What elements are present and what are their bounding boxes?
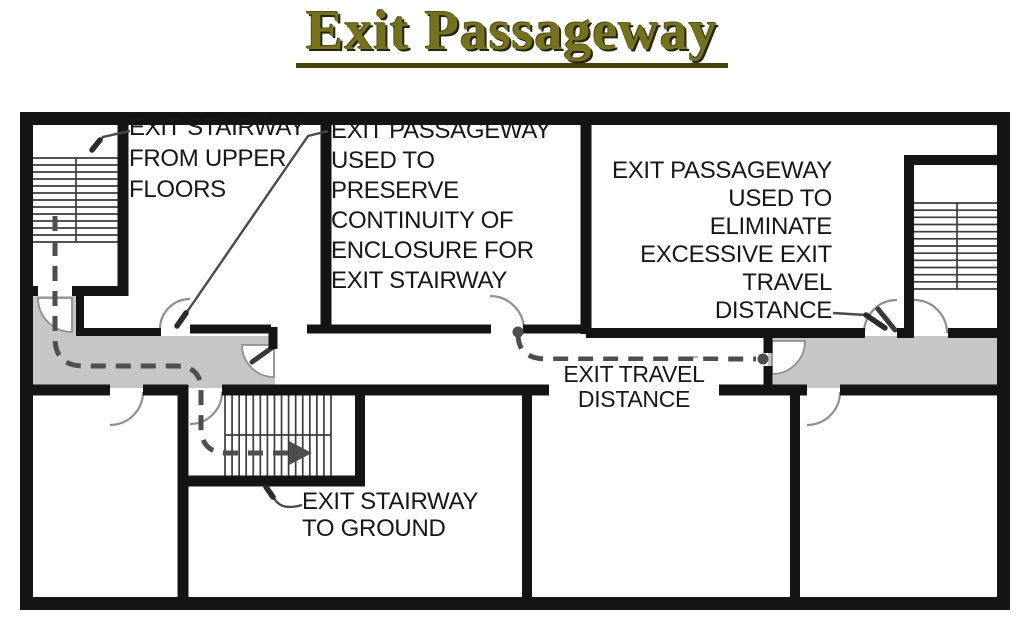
floor-plan bbox=[0, 0, 1024, 625]
travel-distance-start-dot-icon bbox=[513, 327, 524, 338]
travel-distance-end-dot-icon bbox=[758, 354, 769, 365]
exit-passageway-diagram: Exit Passageway bbox=[0, 0, 1024, 625]
exit-passageway-fills bbox=[28, 296, 1004, 388]
eliminate-label-leader bbox=[833, 313, 866, 315]
label-exit-travel-distance: EXIT TRAVEL DISTANCE bbox=[549, 361, 719, 414]
label-passageway-eliminate-distance: EXIT PASSAGEWAY USED TO ELIMINATE EXCESS… bbox=[582, 157, 832, 325]
left-exit-passageway-fill bbox=[28, 336, 275, 388]
ground-stair-door-arc bbox=[190, 392, 222, 424]
upper-floors-stairway bbox=[28, 158, 120, 242]
route-arrowhead-icon bbox=[289, 441, 312, 465]
bottom-right-room-door-arc bbox=[807, 392, 840, 425]
right-stairway bbox=[913, 203, 1000, 289]
label-exit-stairway-upper-floors: EXIT STAIRWAY FROM UPPER FLOORS bbox=[129, 112, 305, 205]
middle-room-door-arc bbox=[490, 296, 524, 330]
ground-stairway bbox=[225, 392, 331, 478]
label-passageway-continuity: EXIT PASSAGEWAY USED TO PRESERVE CONTINU… bbox=[331, 116, 551, 296]
bottom-left-room-door-arc bbox=[110, 392, 143, 425]
right-stair-door-arc bbox=[914, 300, 947, 333]
ground-stair-label-leader bbox=[273, 497, 302, 507]
label-exit-stairway-to-ground: EXIT STAIRWAY TO GROUND bbox=[302, 488, 478, 542]
